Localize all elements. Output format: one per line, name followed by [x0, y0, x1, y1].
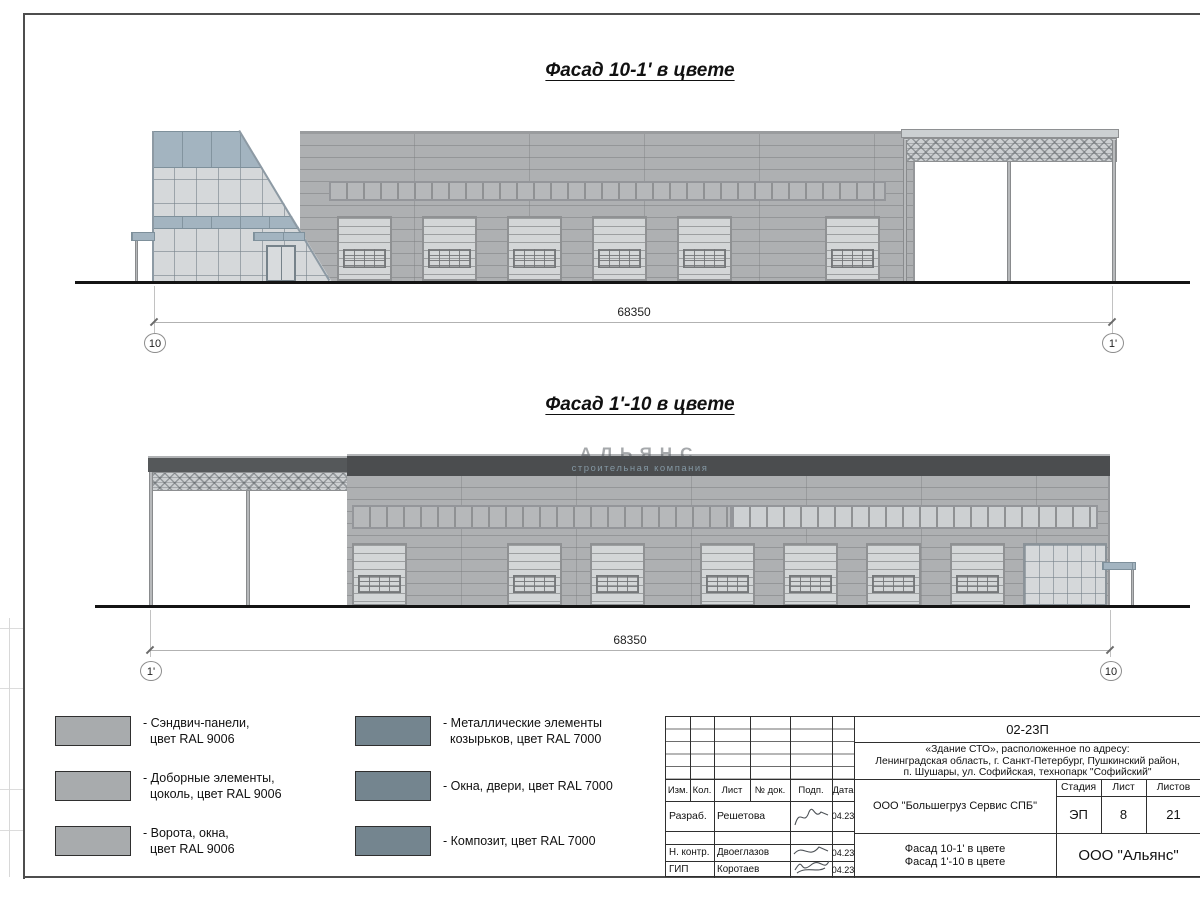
watermark-subtitle: строительная компания	[545, 463, 735, 474]
stage-label: Стадия	[1056, 779, 1101, 796]
grid-line	[854, 742, 1200, 743]
col-header: Подп.	[790, 779, 832, 801]
sheets-label: Листов	[1146, 779, 1200, 796]
legend-swatch	[355, 771, 431, 801]
signer-date: 04.23	[832, 801, 854, 831]
title-block: Изм. Кол. Лист № док. Подп. Дата Разраб.…	[665, 716, 1200, 877]
legend-label: - Композит, цвет RAL 7000	[443, 826, 683, 856]
legend-swatch	[55, 771, 131, 801]
sheet-label: Лист	[1101, 779, 1146, 796]
grid-line	[666, 831, 854, 832]
sheet-value: 8	[1101, 796, 1146, 833]
col-header: № док.	[750, 779, 790, 801]
signer-name: Решетова	[717, 801, 789, 831]
signer-date: 04.23	[832, 844, 854, 861]
sheets-value: 21	[1146, 796, 1200, 833]
legend-label: - Сэндвич-панели,цвет RAL 9006	[143, 716, 353, 746]
stage-value: ЭП	[1056, 796, 1101, 833]
signature-scribble	[791, 803, 831, 829]
signer-role: Разраб.	[669, 801, 714, 831]
col-header: Изм.	[666, 779, 690, 801]
signature-scribble	[791, 842, 831, 877]
legend-label: - Ворота, окна,цвет RAL 9006	[143, 826, 353, 856]
sheet-title: Фасад 10-1' в цвете Фасад 1'-10 в цвете	[854, 833, 1056, 878]
signer-date: 04.23	[832, 861, 854, 878]
legend-label: - Доборные элементы,цоколь, цвет RAL 900…	[143, 771, 353, 801]
watermark-logo: АЛЬЯНС	[520, 444, 760, 464]
drawing-sheet: Фасад 10-1' в цвете	[0, 0, 1200, 900]
col-header: Дата	[832, 779, 854, 801]
legend-swatch	[355, 826, 431, 856]
org-name: ООО "Альянс"	[1056, 833, 1200, 878]
col-header: Кол.	[690, 779, 714, 801]
signer-name: Двоеглазов	[717, 844, 789, 861]
signer-name: Коротаев	[717, 861, 789, 878]
legend-swatch	[55, 716, 131, 746]
revision-rows	[666, 717, 854, 779]
project-address: «Здание СТО», расположенное по адресу: Л…	[854, 744, 1200, 779]
legend-label: - Окна, двери, цвет RAL 7000	[443, 771, 683, 801]
col-header: Лист	[714, 779, 750, 801]
legend-swatch	[355, 716, 431, 746]
legend-swatch	[55, 826, 131, 856]
signer-role: ГИП	[669, 861, 714, 878]
company-name: ООО "Большегруз Сервис СПБ"	[854, 779, 1056, 833]
signer-role: Н. контр.	[669, 844, 714, 861]
doc-number: 02-23П	[854, 717, 1200, 742]
legend-label: - Металлические элементыкозырьков, цвет …	[443, 716, 683, 746]
